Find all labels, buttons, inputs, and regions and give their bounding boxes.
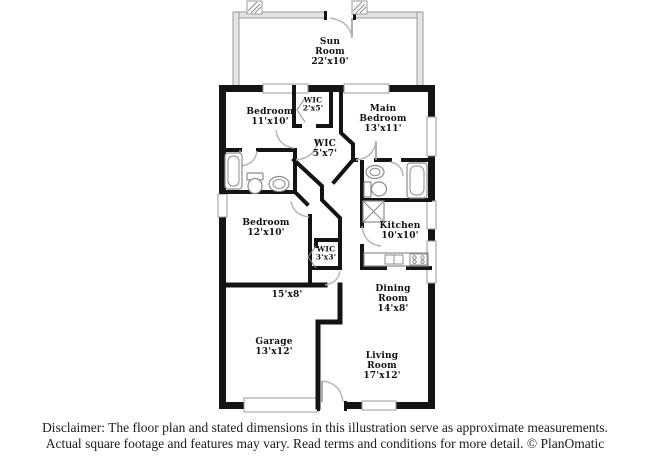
toilet-icon [248, 179, 262, 194]
garage-door [244, 398, 318, 412]
bathroom1-fixtures [225, 153, 289, 194]
toilet-tank [364, 182, 371, 197]
room-label-main-bedroom: Main Bedroom 13'x11' [359, 104, 406, 134]
bath2-door-swing [390, 162, 403, 176]
disclaimer-text: Disclaimer: The floor plan and stated di… [0, 420, 650, 452]
sink-icon [269, 177, 289, 192]
front-door-swing [322, 381, 343, 402]
kitchen-door-swing [362, 226, 381, 246]
sun-room-door-swing [330, 18, 352, 38]
hatched-post-left [247, 1, 262, 14]
window-bedroom2-left [218, 194, 227, 217]
bedroom1-door-swing [276, 130, 294, 148]
room-label-wic-2x5: WIC 2'x5' [303, 97, 324, 114]
floor-plan-drawing [0, 0, 650, 473]
room-label-bedroom-2: Bedroom 12'x10' [242, 218, 289, 238]
disclaimer-line-1: Disclaimer: The floor plan and stated di… [0, 420, 650, 436]
window-kitchen-right [427, 201, 436, 229]
front-door-opening [319, 401, 345, 411]
garage-door-panel [244, 398, 318, 412]
room-label-dining-room: Dining Room 14'x8' [375, 284, 410, 314]
bathroom2-fixtures [364, 163, 427, 198]
window-main-bedroom-right [427, 117, 436, 156]
wall-wic5x7-lower-right [334, 160, 353, 182]
hatch-box [247, 1, 262, 14]
wall-bedroom2-door-diag [295, 192, 307, 204]
hatch-box [352, 1, 367, 14]
wall-main-bedroom-left [341, 87, 353, 160]
toilet-icon [372, 182, 387, 196]
front-door [317, 381, 347, 411]
main-bedroom-door-swing [356, 141, 376, 160]
room-label-garage: Garage 13'x12' [255, 337, 292, 357]
window-main-bedroom-top [344, 84, 389, 93]
sink-icon [366, 166, 384, 179]
door-jamb [344, 401, 347, 411]
floor-plan-page: Sun Room 22'x10' Bedroom 11'x10' WIC 2'x… [0, 0, 650, 473]
outer-wall-left [219, 85, 226, 409]
outer-wall-top [219, 85, 435, 92]
sun-room-right-wall [417, 12, 423, 88]
window-bedroom1 [263, 84, 308, 93]
disclaimer-line-2: Actual square footage and features may v… [0, 436, 650, 452]
room-label-kitchen: Kitchen 10'x10' [379, 221, 420, 241]
room-label-living-room: Living Room 17'x12' [363, 351, 400, 381]
room-label-wic-3x3: WIC 3'x3' [316, 246, 337, 263]
room-label-bedroom-1: Bedroom 11'x10' [246, 107, 293, 127]
hatched-post-right [352, 1, 367, 14]
door-jamb [324, 11, 327, 20]
sun-room-left-wall [233, 12, 239, 88]
room-label-sun-room: Sun Room 22'x10' [311, 37, 348, 67]
room-label-15x8: 15'x8' [272, 290, 303, 300]
window-living-bottom [362, 401, 396, 410]
room-label-wic-5x7: WIC 5'x7' [313, 139, 337, 159]
